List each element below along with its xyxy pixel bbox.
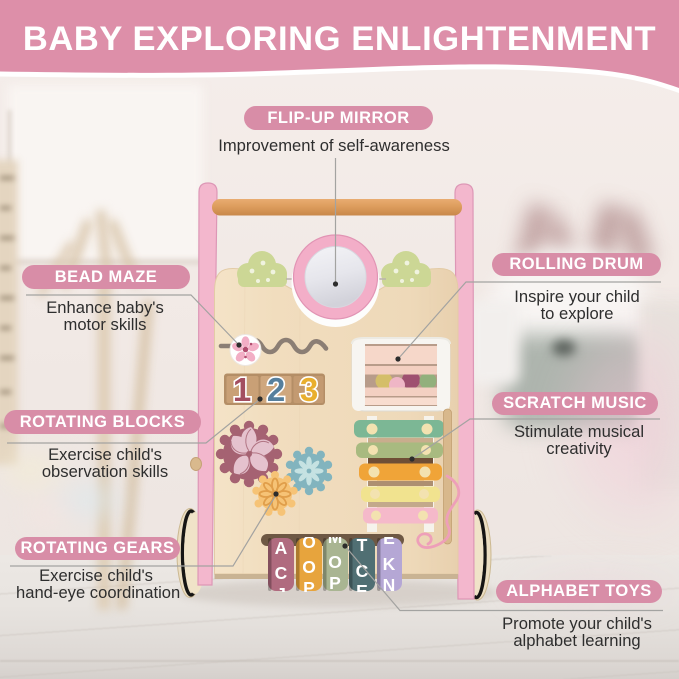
svg-text:P: P	[329, 573, 341, 593]
svg-text:1: 1	[233, 371, 251, 408]
svg-text:K: K	[383, 554, 396, 574]
svg-text:3: 3	[300, 371, 318, 408]
svg-text:A: A	[275, 538, 288, 558]
svg-text:2: 2	[267, 371, 285, 408]
svg-text:O: O	[302, 557, 316, 577]
svg-text:C: C	[275, 563, 288, 583]
svg-text:O: O	[328, 552, 342, 572]
svg-text:T: T	[357, 535, 368, 555]
